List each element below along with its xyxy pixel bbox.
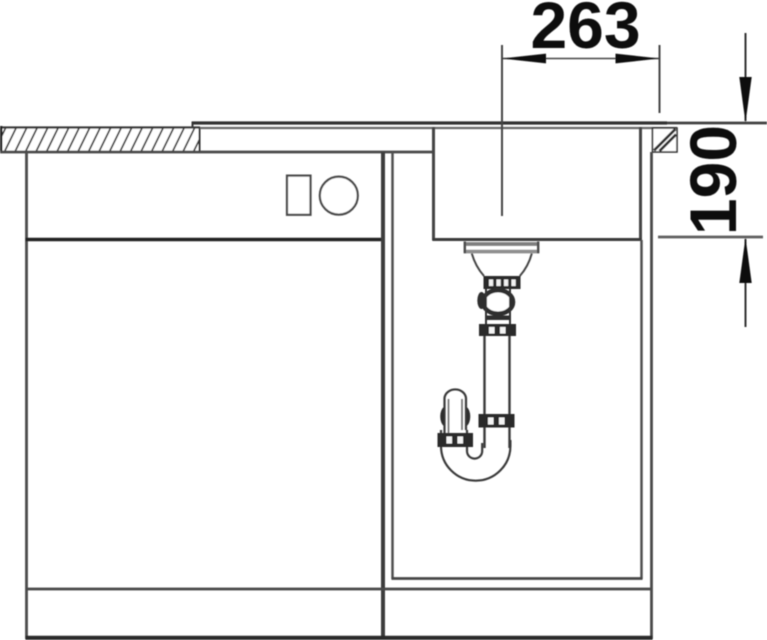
svg-text:190: 190 bbox=[676, 125, 750, 235]
svg-text:263: 263 bbox=[530, 0, 640, 62]
